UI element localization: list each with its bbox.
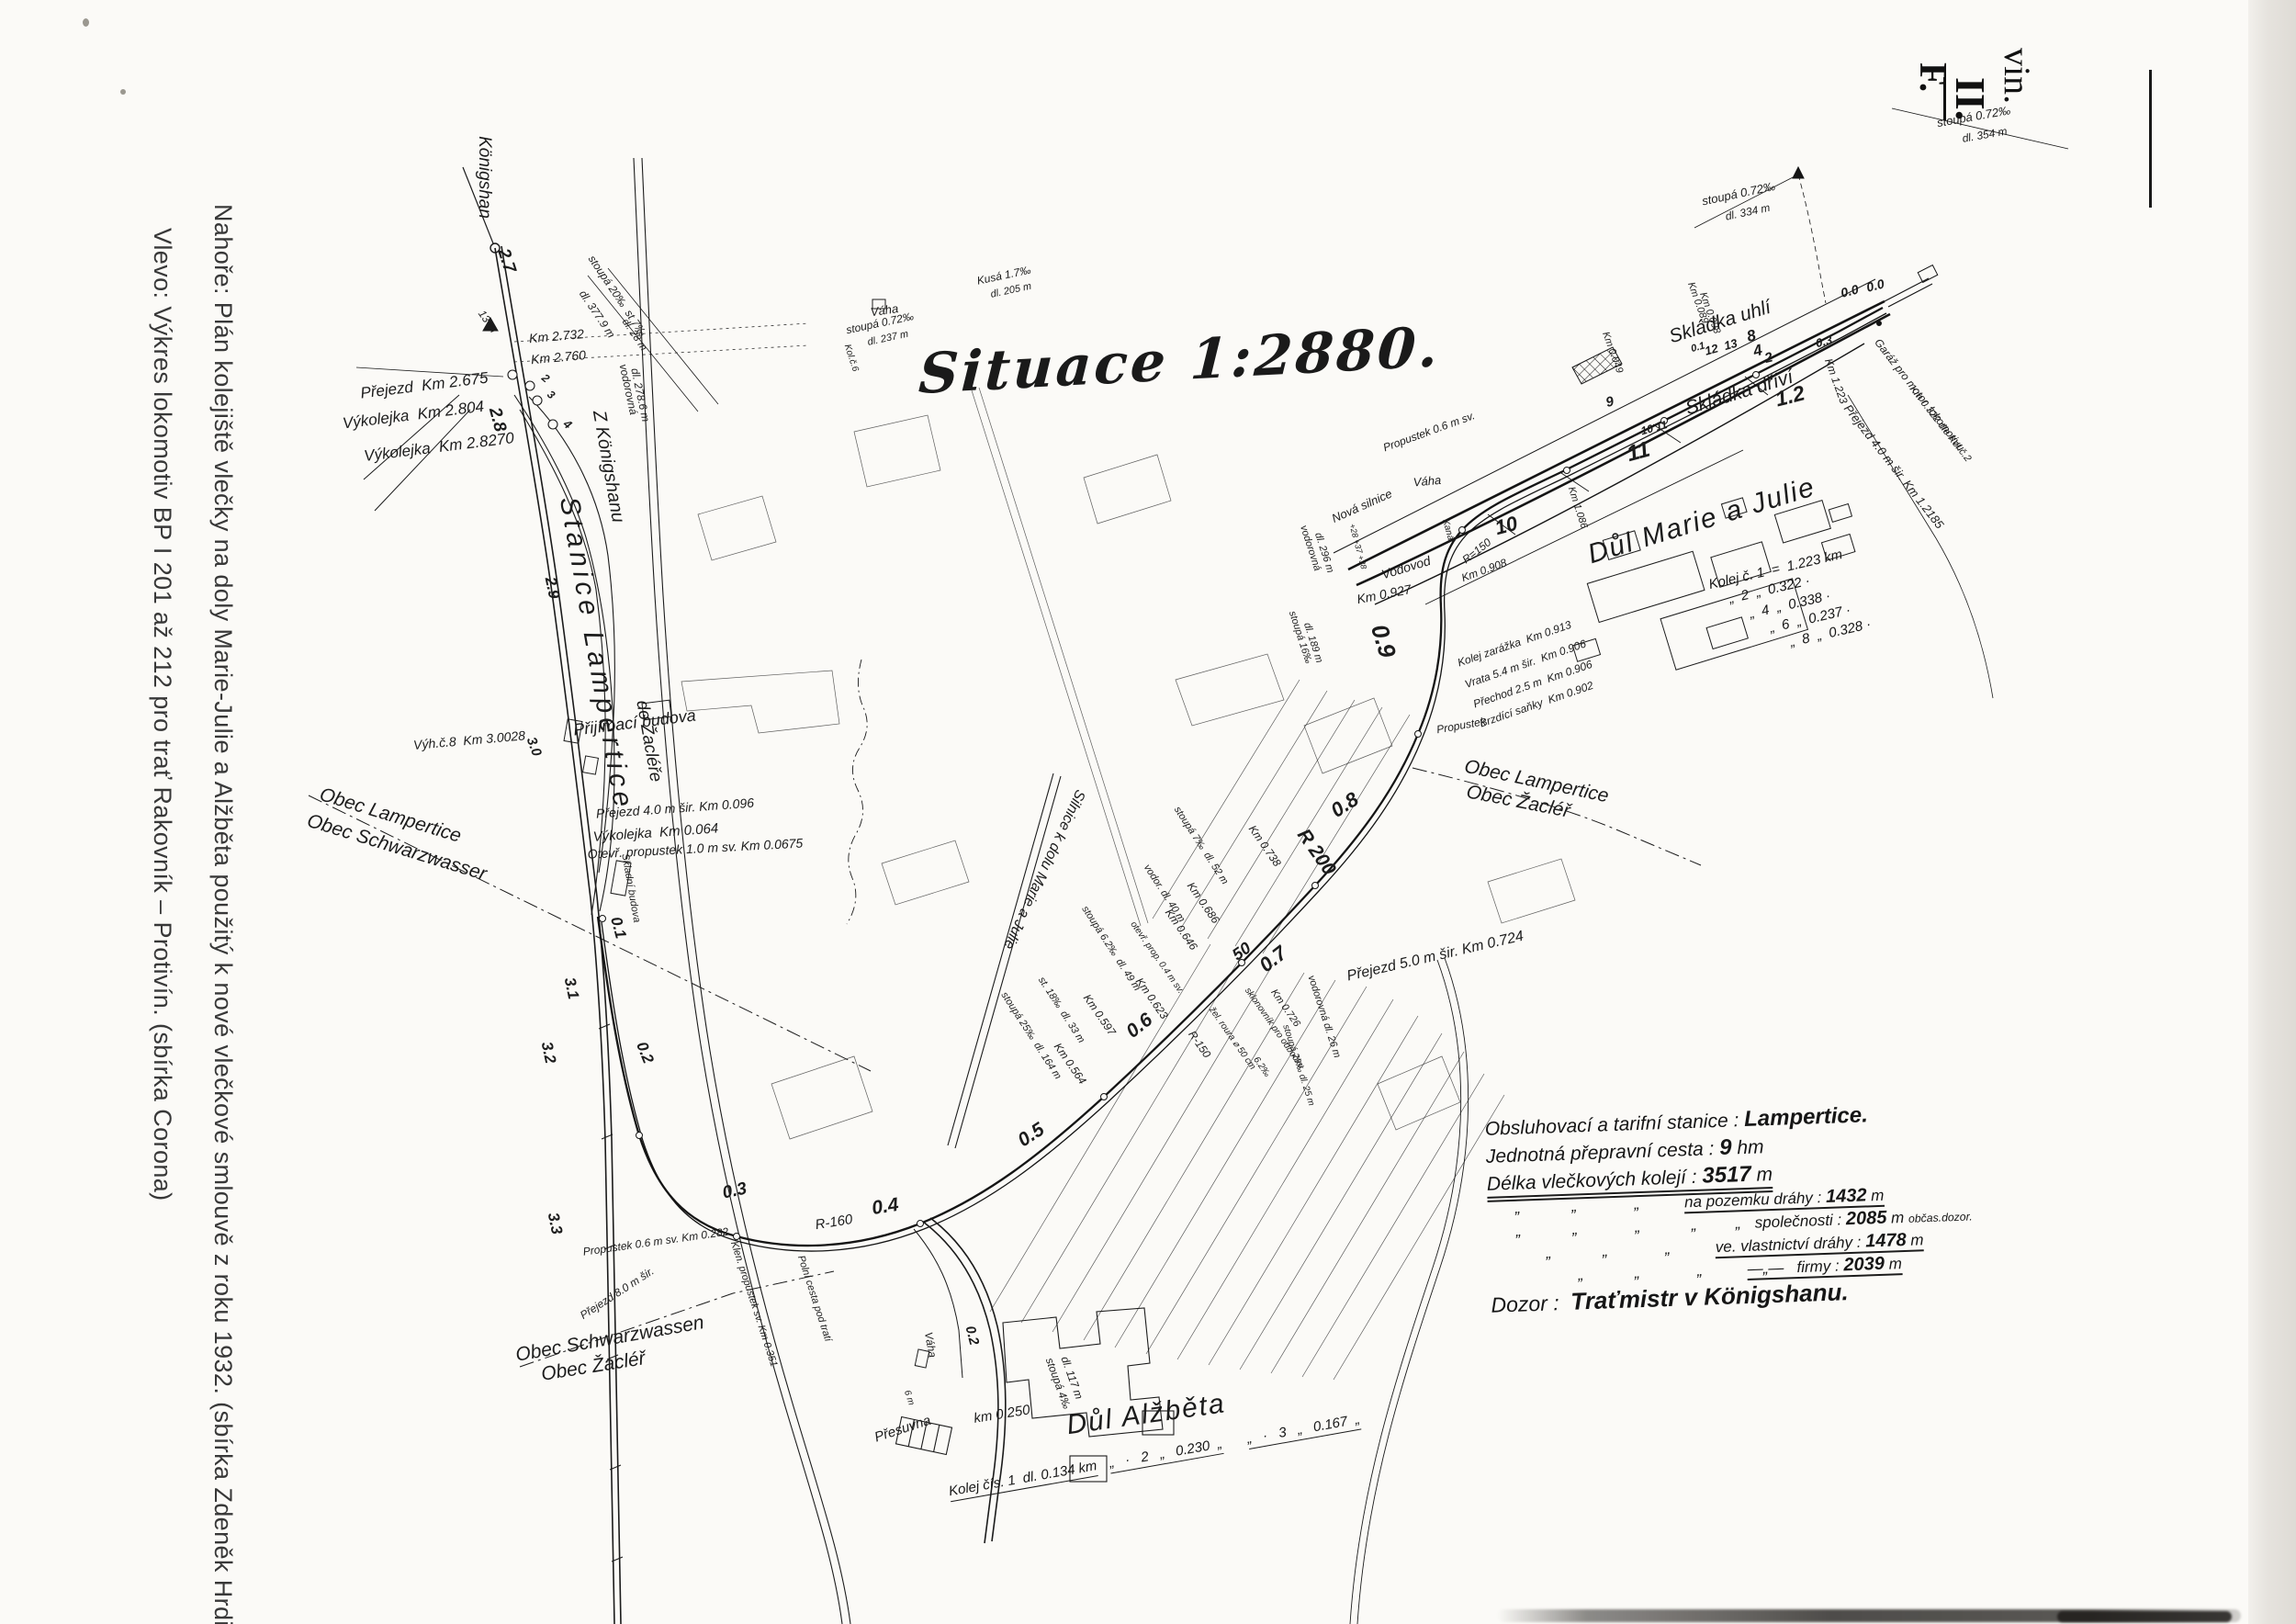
map-label: Königshan xyxy=(475,136,493,219)
map-label: 3.2 xyxy=(538,1041,558,1066)
corner-word-fragment: vin. xyxy=(1996,48,2039,104)
page-edge-band xyxy=(2248,0,2296,1624)
mine-alzbeta xyxy=(895,1218,1174,1543)
map-label: Váha xyxy=(1412,474,1441,489)
corner-roman-numeral: II. xyxy=(1943,77,1995,120)
scan-smudge-2 xyxy=(2057,1611,2232,1622)
caption-left: Vlevo: Výkres lokomotiv BP I 201 až 212 … xyxy=(148,228,176,1201)
scan-speck xyxy=(83,18,89,27)
map-label: 0.4 xyxy=(871,1195,900,1219)
page-fold-line xyxy=(2149,70,2152,208)
scan-speck-2 xyxy=(120,89,126,95)
caption-top: Nahoře: Plán kolejiště vlečky na doly Ma… xyxy=(208,204,237,1624)
map-label: 3.1 xyxy=(561,976,581,1001)
map-label: 3.3 xyxy=(545,1212,565,1236)
map-label: 2.9 xyxy=(542,576,562,601)
legend-block: Obsluhovací a tarifní stanice : Lamperti… xyxy=(1484,1094,2060,1321)
stream xyxy=(847,660,867,924)
scanned-book-page: Nahoře: Plán kolejiště vlečky na doly Ma… xyxy=(0,0,2296,1624)
